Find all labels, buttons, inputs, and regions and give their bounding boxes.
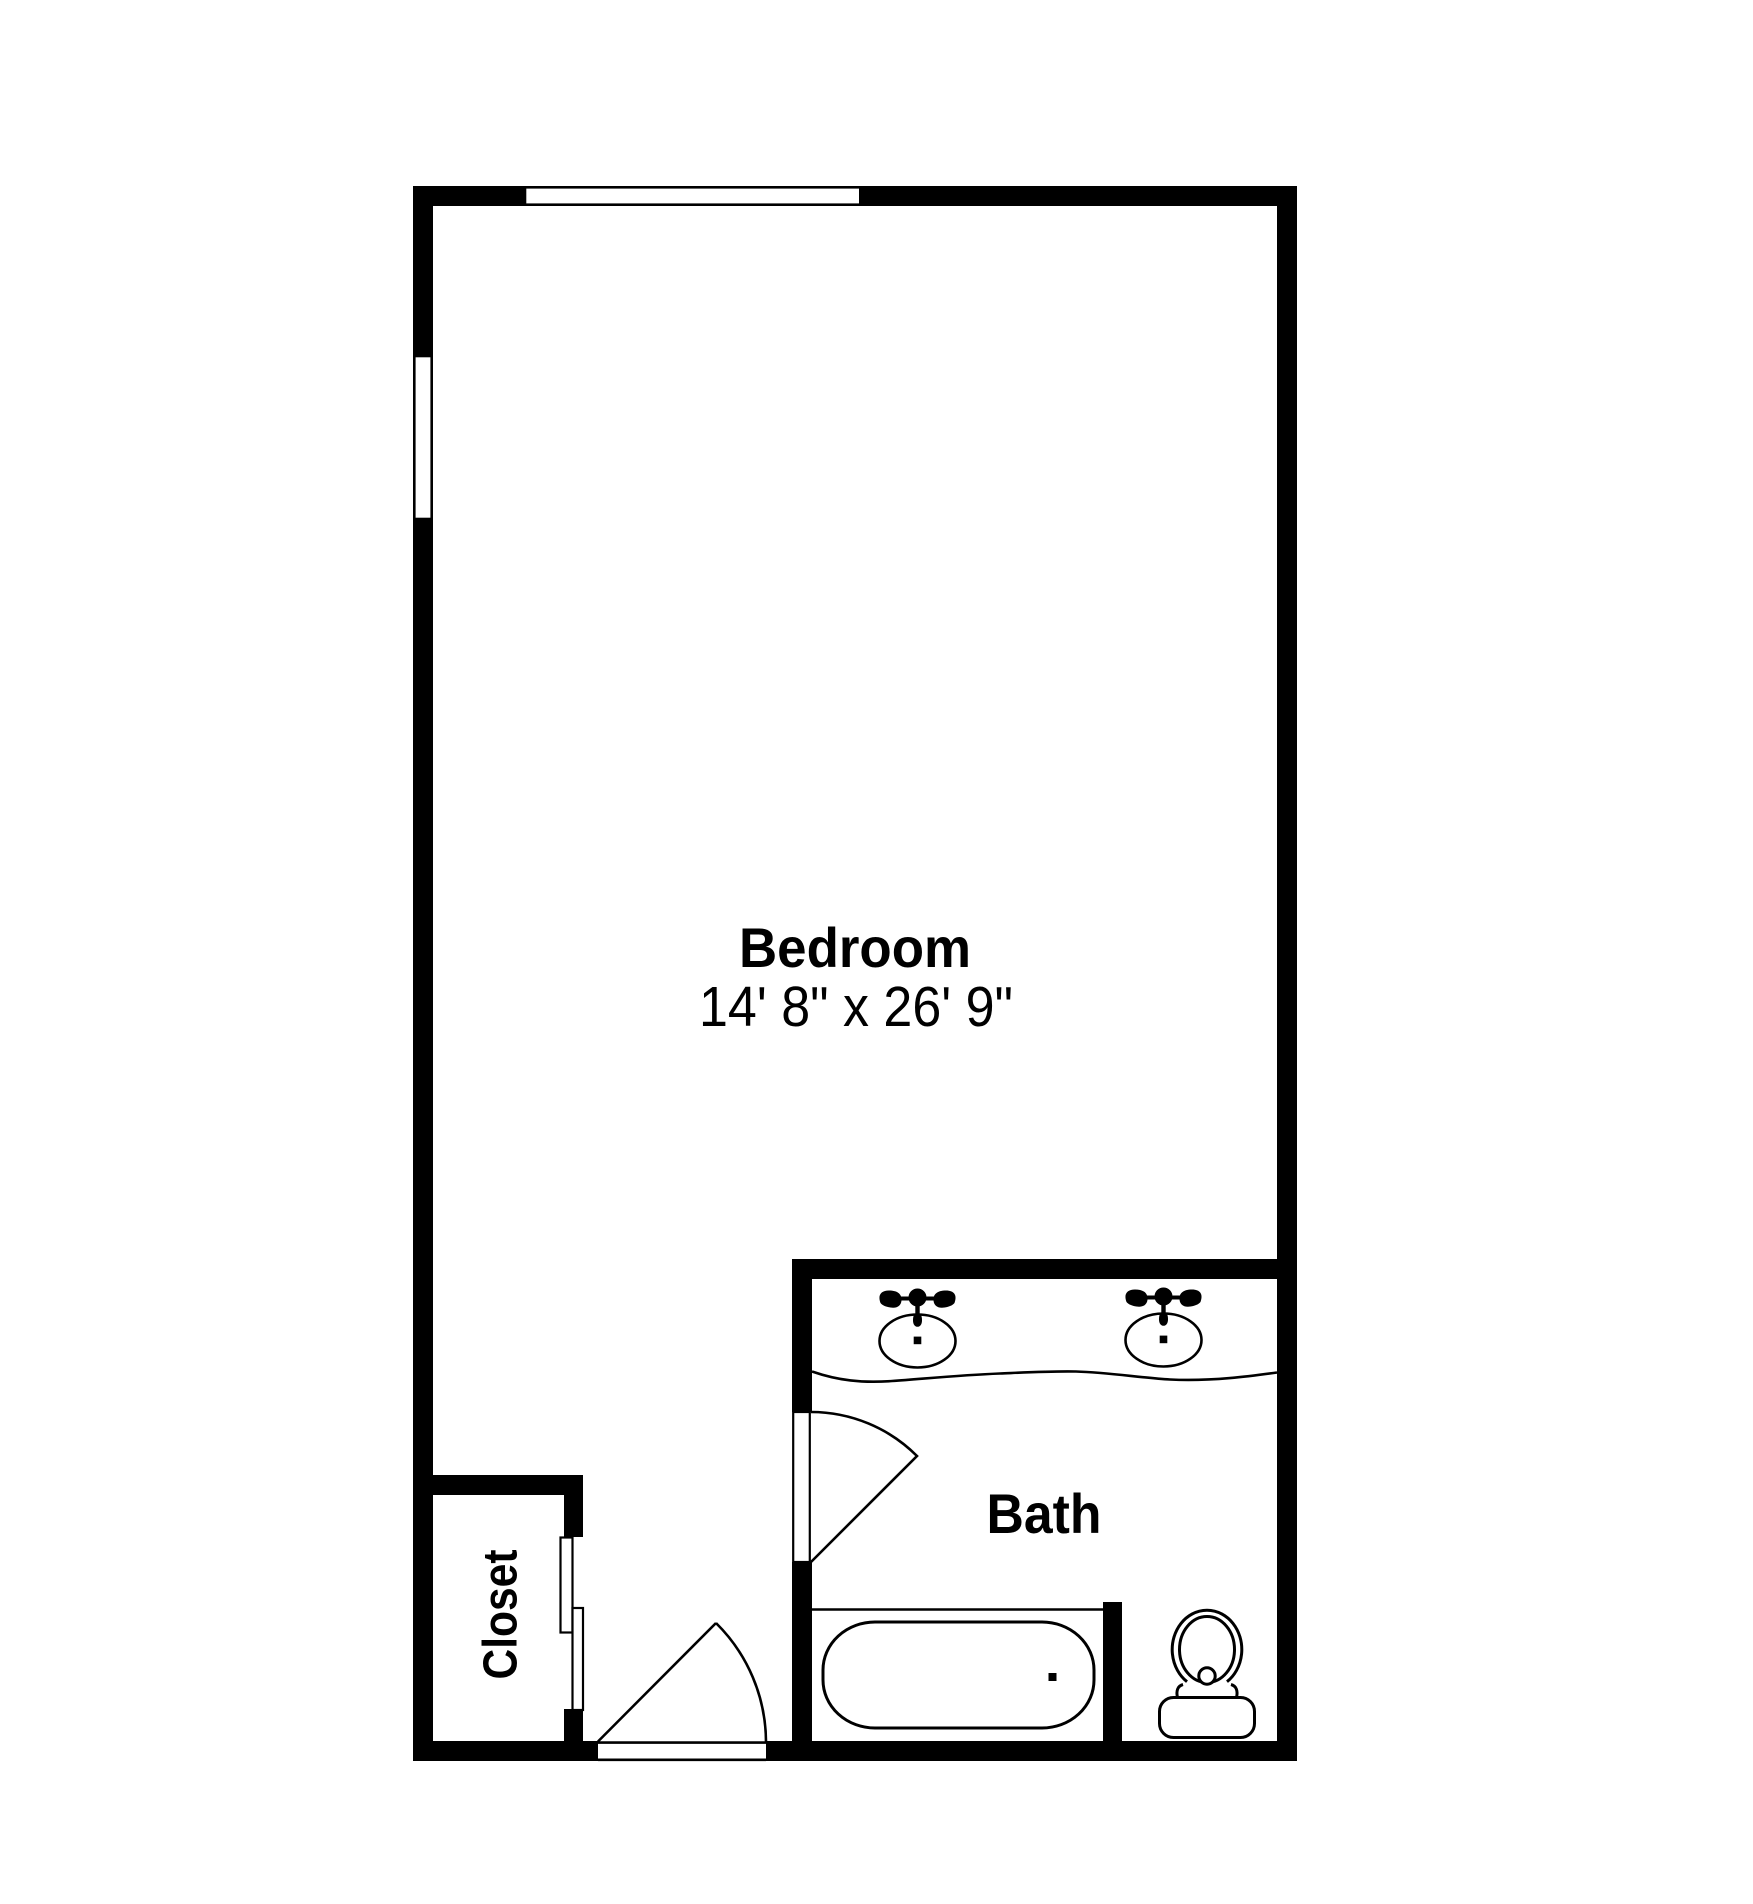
svg-text:Closet: Closet: [475, 1549, 528, 1679]
svg-text:14' 8" x 26' 9": 14' 8" x 26' 9": [699, 975, 1013, 1039]
svg-text:Bedroom: Bedroom: [739, 916, 971, 979]
svg-text:Bath: Bath: [987, 1482, 1102, 1545]
